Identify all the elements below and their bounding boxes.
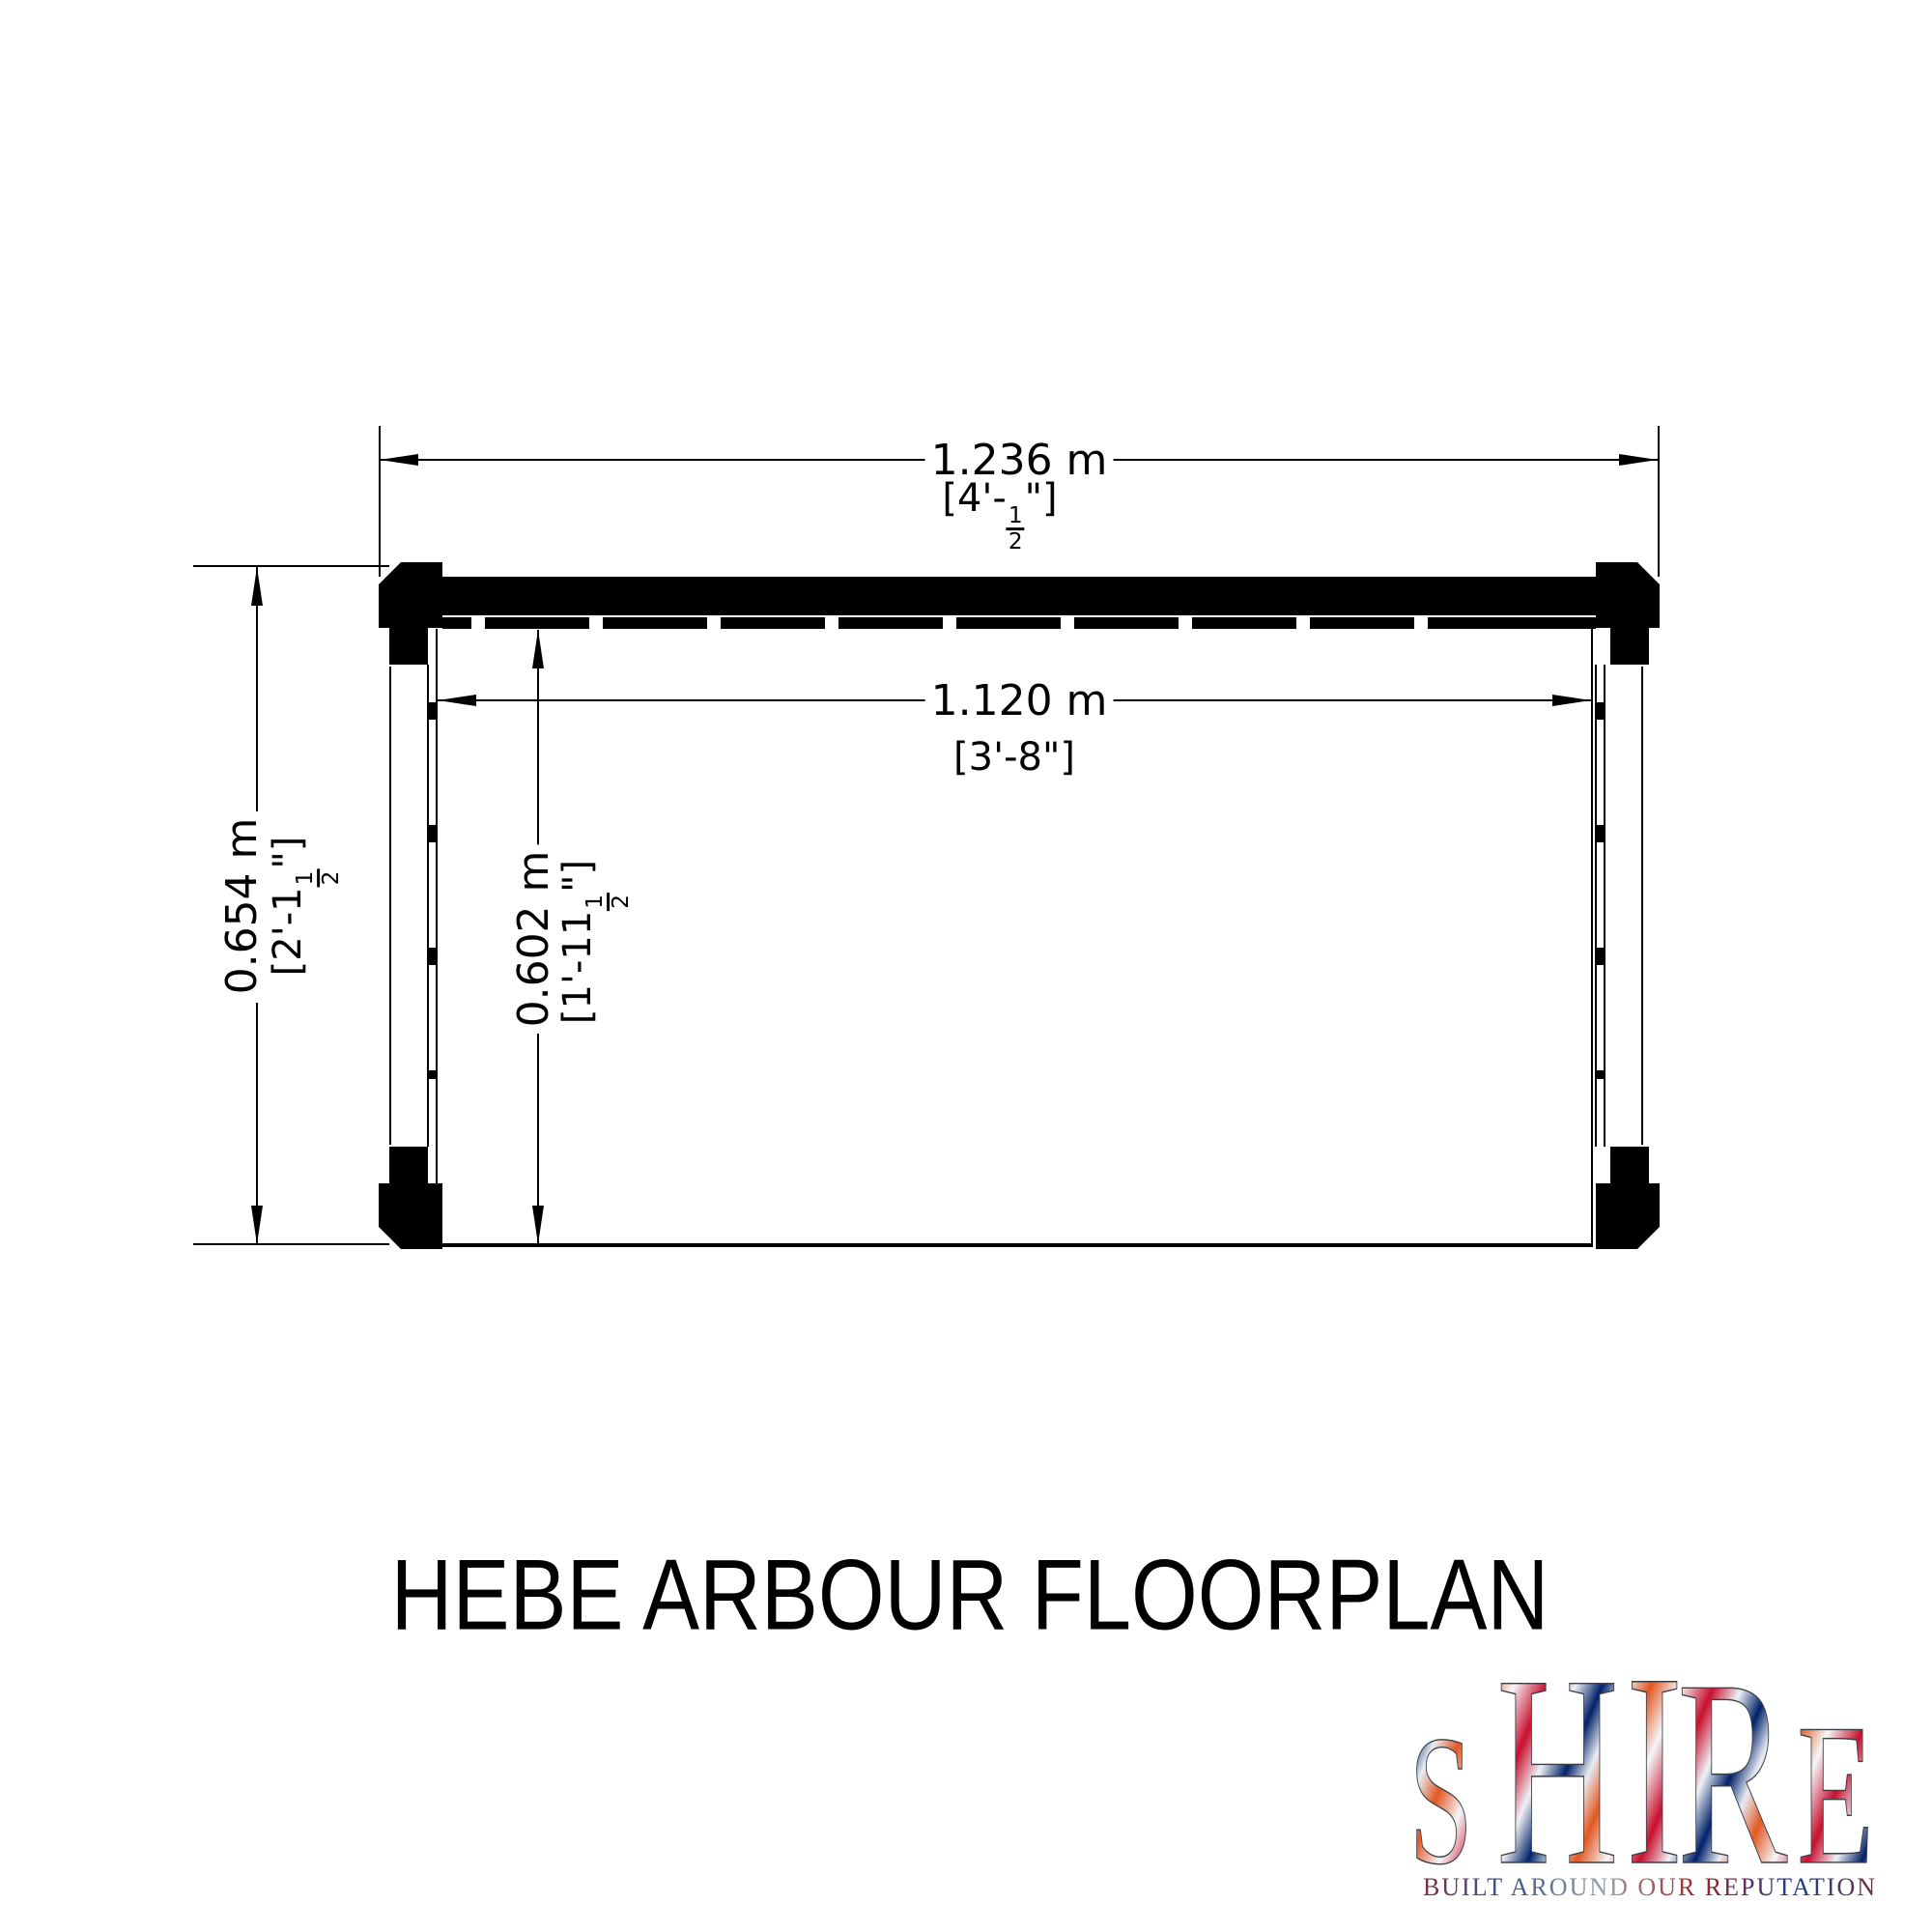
extension-line-width-right	[1658, 426, 1660, 577]
dimension-line-width-inner-b	[1109, 699, 1591, 701]
imperial-suffix: "]	[555, 860, 600, 893]
side-wall-left-outer-line	[389, 667, 391, 1145]
post-stub-top-left	[389, 628, 428, 665]
fraction-numerator: 1	[583, 893, 610, 911]
side-wall-right-outer-line	[1641, 667, 1643, 1145]
imperial-suffix: "]	[1025, 476, 1058, 521]
corner-post-top-left	[379, 562, 442, 628]
interior-edge-right	[1591, 629, 1593, 1246]
imperial-prefix: [4'-	[942, 476, 1006, 521]
fraction: 12	[294, 869, 344, 888]
dim-width-inner-metric: 1.120 m	[925, 680, 1114, 723]
post-stub-top-right	[1610, 628, 1649, 665]
extension-line-height-bottom	[193, 1243, 389, 1245]
imperial-prefix: [1'-11	[555, 911, 600, 1024]
dimension-line-width-inner-a	[438, 699, 927, 701]
dim-width-outer-imperial: [4'-12"]	[936, 479, 1063, 554]
shire-logo: S H I R E BUILT AROUND OUR REPUTATION	[1391, 1660, 1913, 1916]
arrowhead-icon	[251, 567, 263, 606]
dim-width-inner-imperial: [3'-8"]	[948, 738, 1081, 777]
drawing-title: HEBE ARBOUR FLOORPLAN	[391, 1539, 1549, 1654]
logo-tagline: BUILT AROUND OUR REPUTATION	[1423, 1873, 1877, 1901]
extension-line-height-top	[193, 565, 389, 567]
back-beam	[384, 577, 1655, 615]
back-slats	[442, 617, 1596, 629]
fraction: 12	[1007, 504, 1025, 554]
dimension-line-width-outer-b	[1113, 459, 1658, 461]
fraction: 12	[583, 893, 634, 911]
dim-height-outer-metric: 0.654 m	[221, 812, 264, 1001]
post-stub-bottom-left	[389, 1147, 428, 1183]
arrowhead-icon	[532, 630, 544, 668]
fraction-denominator: 2	[321, 869, 344, 888]
extension-line-width-left	[379, 426, 381, 577]
arrowhead-icon	[1619, 454, 1658, 466]
fraction-numerator: 1	[1007, 504, 1025, 530]
interior-edge-left	[436, 629, 438, 1246]
floorplan-page: 1.236 m [4'-12"] 1.120 m [3'-8"] 0.654 m…	[0, 0, 1932, 1932]
fraction-numerator: 1	[294, 869, 320, 888]
post-stub-bottom-right	[1610, 1147, 1649, 1183]
arrowhead-icon	[532, 1206, 544, 1244]
fraction-denominator: 2	[611, 893, 634, 911]
dim-height-inner-imperial: [1'-1112"]	[558, 854, 634, 1030]
dimension-line-width-outer-a	[380, 459, 925, 461]
corner-post-top-right	[1596, 562, 1660, 628]
arrowhead-icon	[380, 454, 418, 466]
dim-height-outer-imperial: [2'-112"]	[269, 831, 344, 982]
dim-height-inner-metric: 0.602 m	[513, 845, 555, 1034]
imperial-prefix: [2'-1	[266, 887, 310, 976]
arrowhead-icon	[251, 1206, 263, 1244]
arrowhead-icon	[438, 695, 476, 706]
corner-post-bottom-right	[1596, 1183, 1660, 1249]
arrowhead-icon	[1552, 695, 1591, 706]
side-slat-strip-right	[1595, 665, 1605, 1147]
floor-front-edge	[436, 1243, 1593, 1247]
fraction-denominator: 2	[1007, 531, 1025, 554]
corner-post-bottom-left	[379, 1183, 442, 1249]
imperial-suffix: "]	[266, 837, 310, 869]
